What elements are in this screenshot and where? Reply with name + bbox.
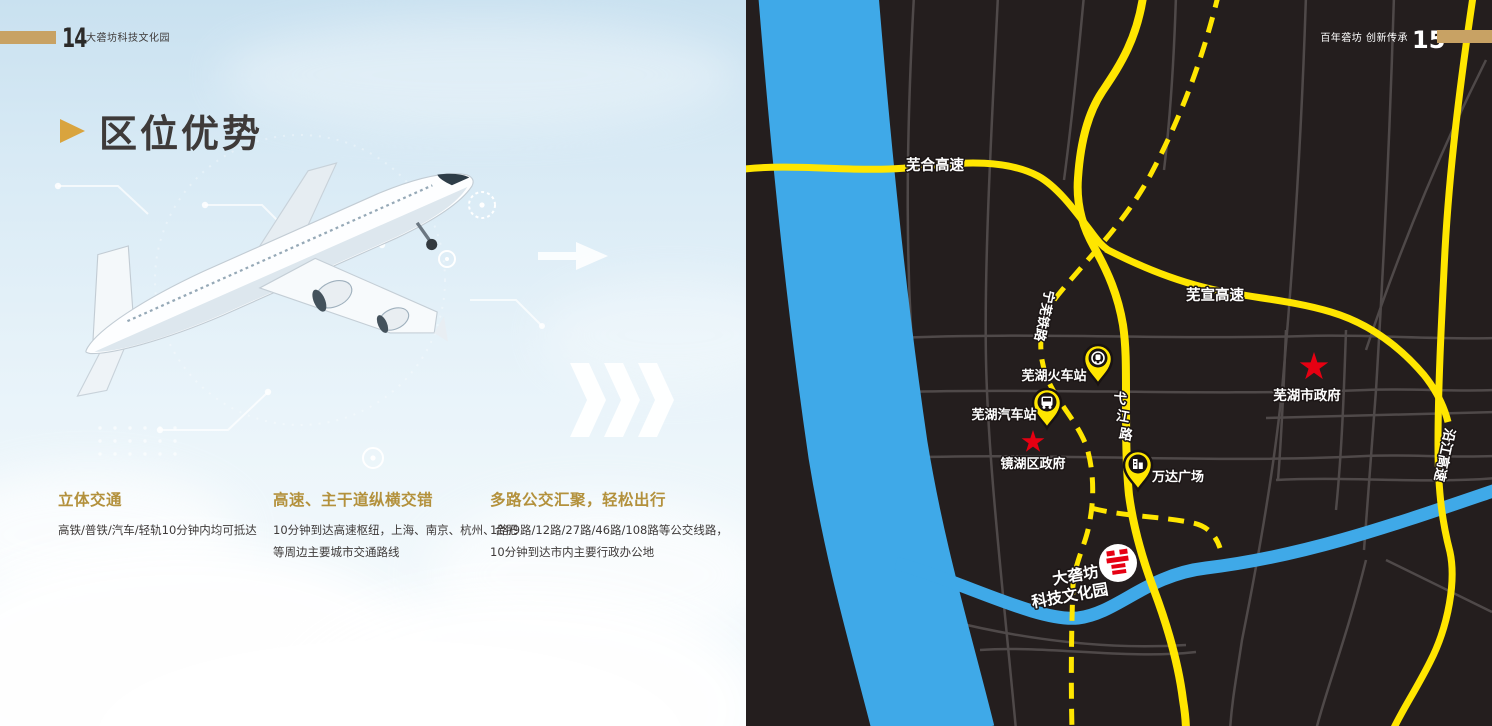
minor-roads xyxy=(896,0,1492,726)
gold-bar xyxy=(1437,30,1492,43)
location-map: 芜合高速 芜宣高速 沿江高速 宁芜铁路 弋 江 路 芜湖火车站 xyxy=(746,0,1492,726)
section-title-row: 区位优势 xyxy=(60,103,263,158)
page-number-left: 14 xyxy=(62,24,87,54)
cloud xyxy=(540,280,746,390)
gold-bar xyxy=(0,31,56,44)
page-right-map: 芜合高速 芜宣高速 沿江高速 宁芜铁路 弋 江 路 芜湖火车站 xyxy=(746,0,1492,726)
yangtze-river xyxy=(818,0,936,726)
engine xyxy=(309,275,356,314)
feature-heading: 多路公交汇聚，轻松出行 xyxy=(490,488,715,510)
engine xyxy=(374,303,412,335)
airplane-illustration xyxy=(28,103,528,488)
doc-title: 大砻坊科技文化园 xyxy=(86,29,170,44)
triangle-bullet-icon xyxy=(60,119,85,143)
bus-station-pin xyxy=(1033,389,1061,428)
circuit-nodes-decoration xyxy=(55,183,545,433)
dot-grid-decoration xyxy=(98,426,176,455)
label-yijiang-road: 弋 江 路 xyxy=(1112,389,1135,444)
page-left: 14 大砻坊科技文化园 区位优势 立体交通 高铁/普铁/汽车/轻轨10分钟内均可… xyxy=(0,0,746,726)
site-logo xyxy=(1099,544,1137,582)
label-train-station: 芜湖火车站 xyxy=(1021,368,1086,384)
circuit-lines-decoration xyxy=(58,186,542,430)
feature-heading: 高速、主干道纵横交错 xyxy=(273,488,488,510)
label-wuhe-expressway: 芜合高速 xyxy=(906,156,964,174)
label-wanda-plaza: 万达广场 xyxy=(1151,469,1204,485)
brochure-spread: 14 大砻坊科技文化园 区位优势 立体交通 高铁/普铁/汽车/轻轨10分钟内均可… xyxy=(0,0,1492,726)
building-icon xyxy=(1129,455,1148,474)
cloud xyxy=(220,20,740,130)
feature-text: 高铁/普铁/汽车/轻轨10分钟内均可抵达 xyxy=(58,519,268,541)
feature-transit: 立体交通 高铁/普铁/汽车/轻轨10分钟内均可抵达 xyxy=(58,488,268,541)
feature-heading: 立体交通 xyxy=(58,488,268,510)
label-jinghu-gov: 镜湖区政府 xyxy=(1000,456,1065,472)
dashed-ring-decoration xyxy=(155,135,445,425)
feature-text: 1路/9路/12路/27路/46路/108路等公交线路， xyxy=(490,519,715,541)
train-station-pin xyxy=(1084,345,1112,384)
feature-highways: 高速、主干道纵横交错 10分钟到达高速枢纽，上海、南京、杭州、合肥 等周边主要城… xyxy=(273,488,488,563)
landing-gear xyxy=(311,221,434,299)
label-wuxuan-expressway: 芜宣高速 xyxy=(1186,286,1244,304)
svg-text:路: 路 xyxy=(1118,425,1135,444)
wuhu-gov-star-icon xyxy=(1300,352,1329,379)
target-circles-decoration xyxy=(363,192,495,468)
feature-text: 10分钟到达市内主要行政办公地 xyxy=(490,541,715,563)
label-wuhu-gov: 芜湖市政府 xyxy=(1273,387,1341,404)
feature-buses: 多路公交汇聚，轻松出行 1路/9路/12路/27路/46路/108路等公交线路，… xyxy=(490,488,715,563)
jinghu-gov-star-icon xyxy=(1022,430,1045,452)
label-bus-station: 芜湖汽车站 xyxy=(971,407,1036,423)
feature-text: 等周边主要城市交通路线 xyxy=(273,541,488,563)
qingyi-river xyxy=(896,490,1492,618)
feature-text: 10分钟到达高速枢纽，上海、南京、杭州、合肥 xyxy=(273,519,488,541)
arrow-decoration xyxy=(538,242,608,270)
slogan: 百年砻坊 创新传承 xyxy=(1320,31,1408,44)
section-title: 区位优势 xyxy=(99,103,263,158)
